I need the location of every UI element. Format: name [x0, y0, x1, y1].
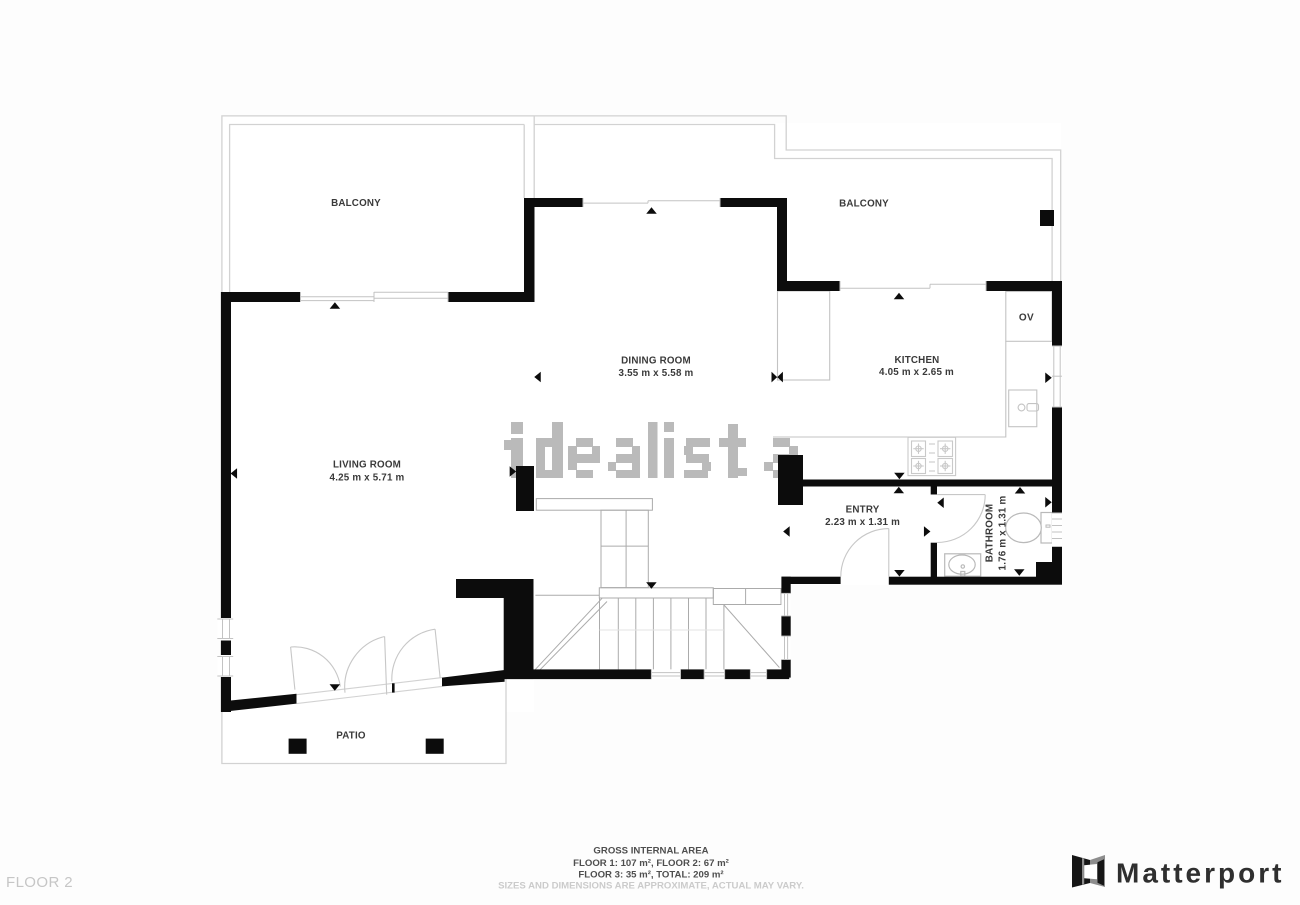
svg-text:SIZES AND DIMENSIONS ARE APPRO: SIZES AND DIMENSIONS ARE APPROXIMATE, AC… [498, 881, 804, 892]
svg-text:4.25 m x 5.71 m: 4.25 m x 5.71 m [330, 473, 405, 484]
svg-text:FLOOR 2: FLOOR 2 [6, 874, 73, 891]
svg-text:BALCONY: BALCONY [331, 198, 381, 209]
svg-text:1.76 m x 1.31 m: 1.76 m x 1.31 m [998, 495, 1009, 570]
svg-text:DINING ROOM: DINING ROOM [621, 356, 691, 367]
svg-text:GROSS INTERNAL AREA: GROSS INTERNAL AREA [593, 846, 708, 857]
svg-text:OV: OV [1019, 313, 1034, 324]
svg-text:4.05 m x 2.65 m: 4.05 m x 2.65 m [879, 367, 954, 378]
svg-text:Matterport: Matterport [1116, 858, 1284, 889]
svg-text:3.55 m x 5.58 m: 3.55 m x 5.58 m [619, 368, 694, 379]
svg-text:ENTRY: ENTRY [846, 505, 880, 516]
svg-text:FLOOR 3: 35 m², TOTAL: 209 m²: FLOOR 3: 35 m², TOTAL: 209 m² [578, 870, 723, 881]
svg-text:LIVING ROOM: LIVING ROOM [333, 460, 401, 471]
svg-text:2.23 m x 1.31 m: 2.23 m x 1.31 m [825, 517, 900, 528]
svg-text:PATIO: PATIO [336, 731, 366, 742]
svg-text:BALCONY: BALCONY [839, 199, 889, 210]
svg-text:KITCHEN: KITCHEN [895, 355, 940, 366]
svg-text:BATHROOM: BATHROOM [985, 504, 996, 563]
svg-text:FLOOR 1: 107 m², FLOOR 2: 67 m: FLOOR 1: 107 m², FLOOR 2: 67 m² [573, 858, 729, 869]
